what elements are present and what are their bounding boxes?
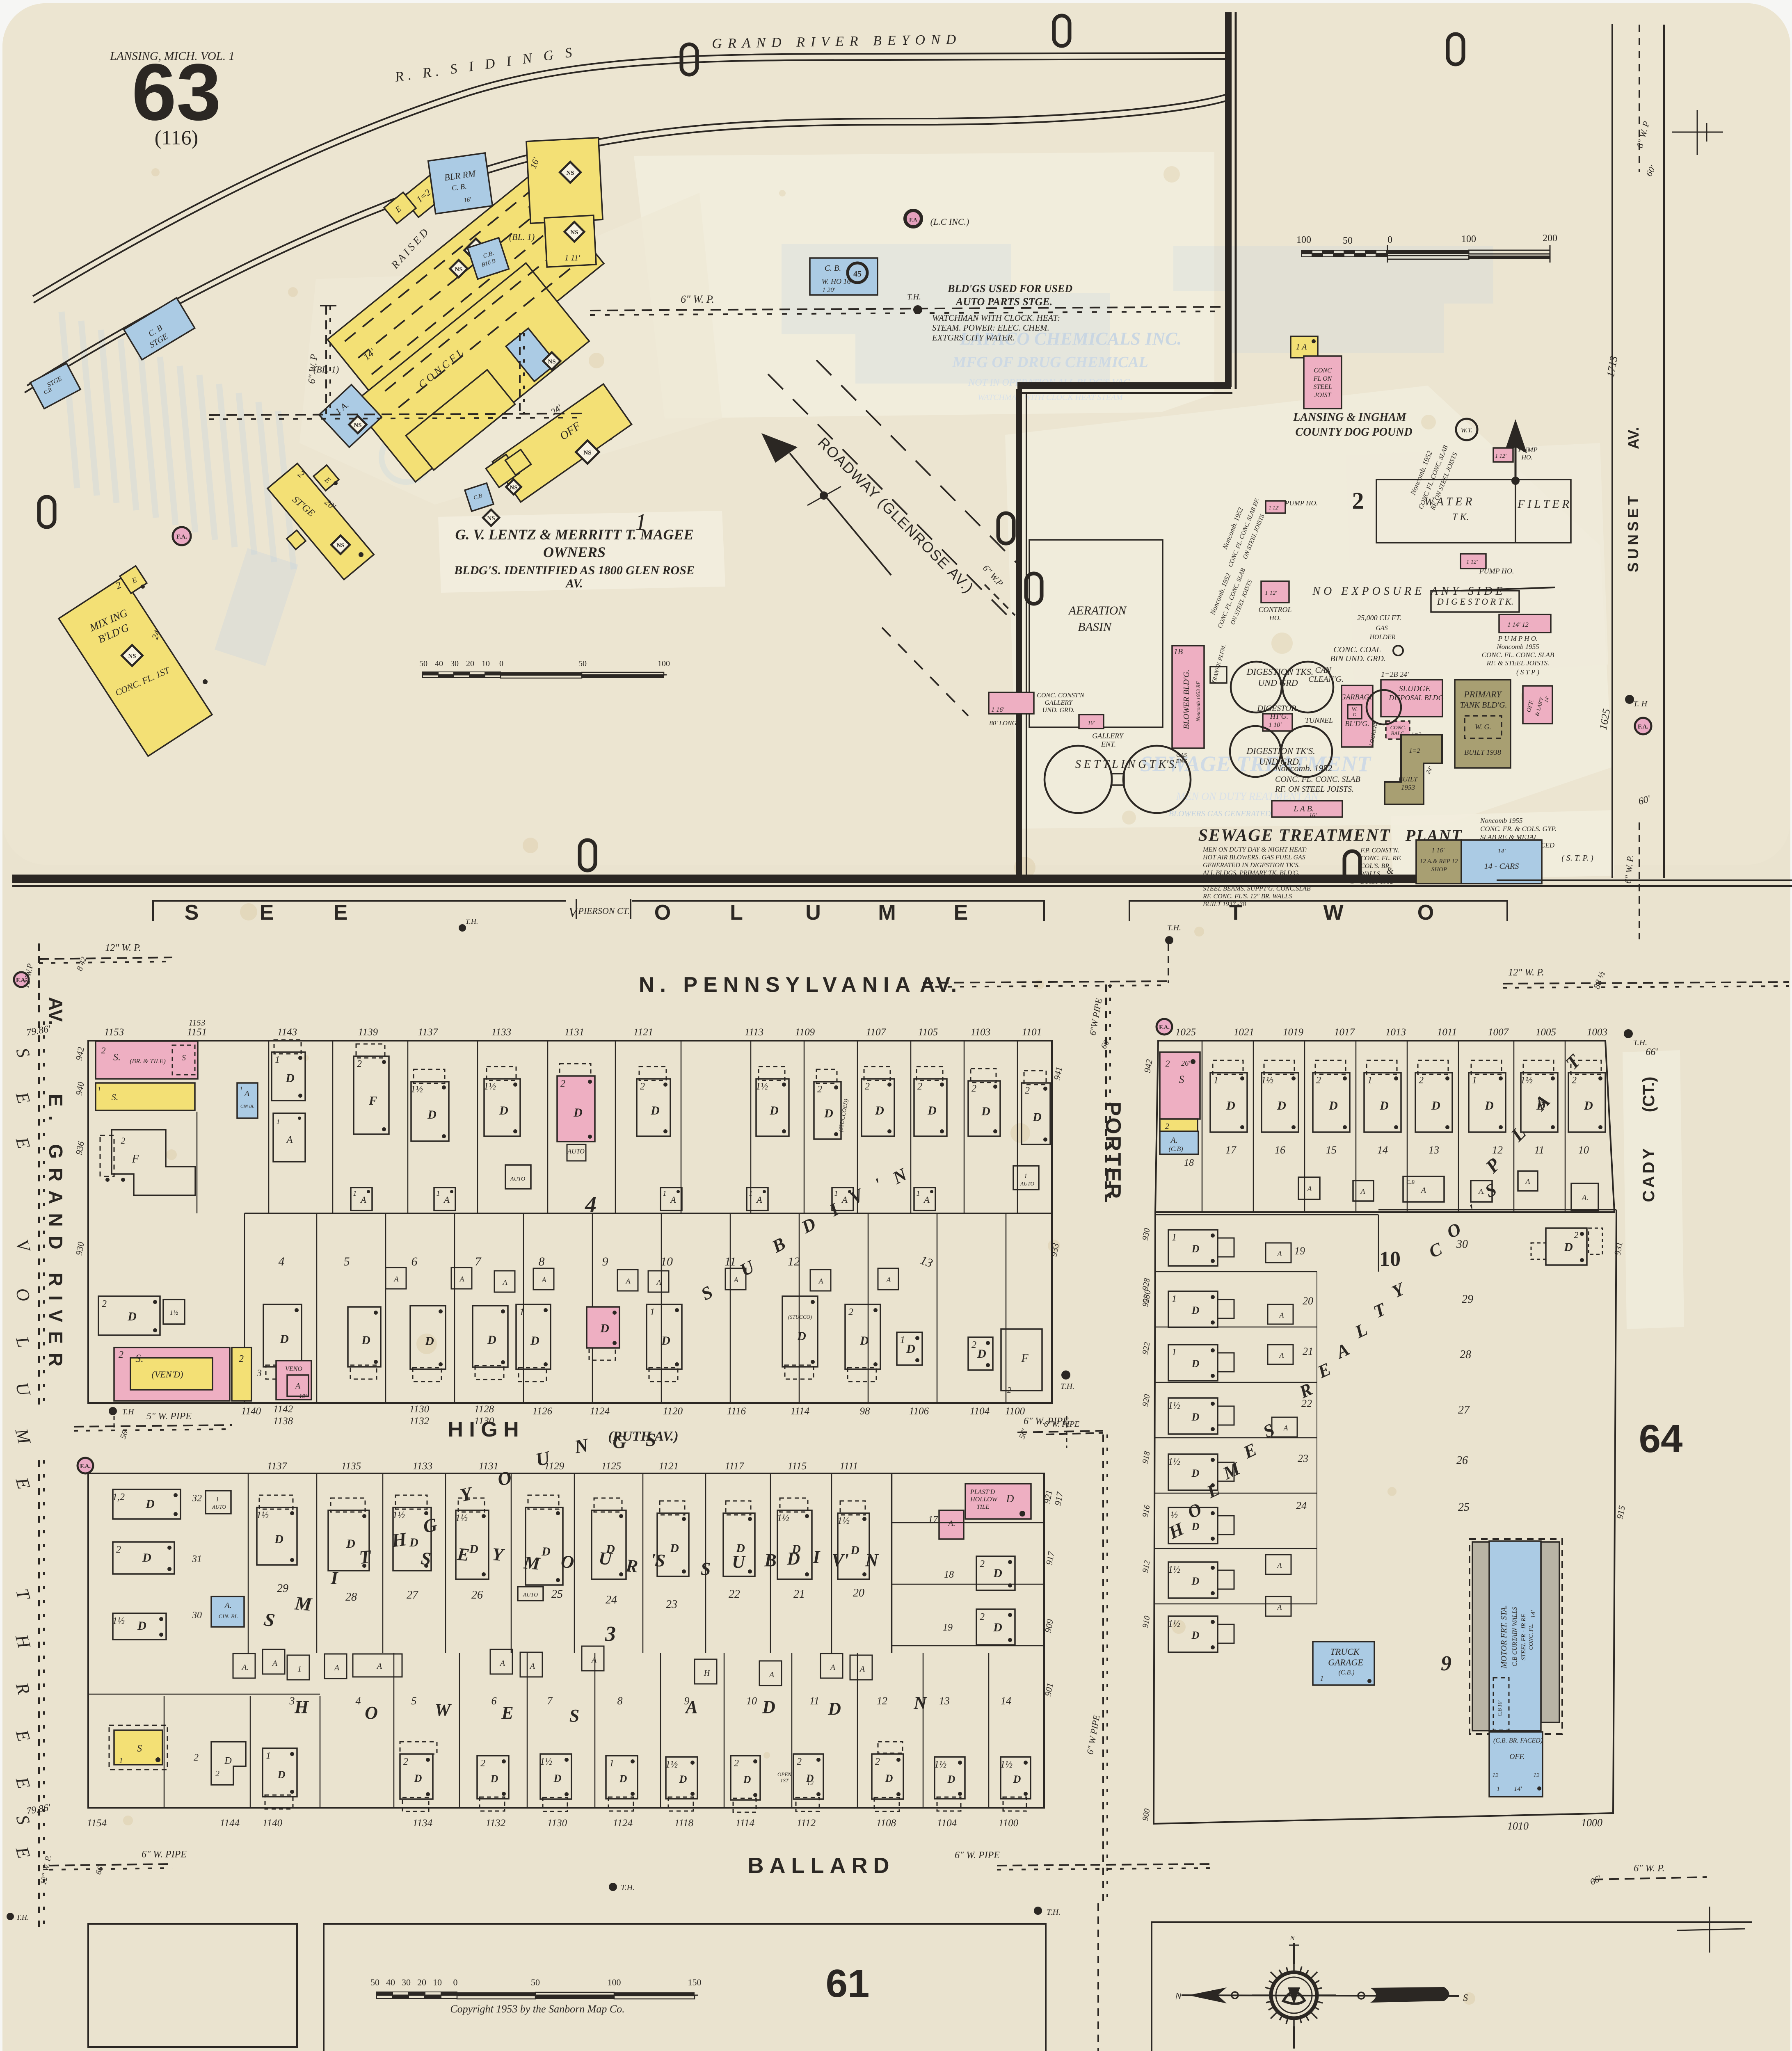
svg-text:1121: 1121	[633, 1027, 653, 1038]
svg-text:CIN BL: CIN BL	[240, 1104, 254, 1109]
svg-text:2: 2	[848, 1307, 853, 1318]
svg-text:2: 2	[215, 1769, 219, 1778]
svg-text:(STUCCO): (STUCCO)	[788, 1314, 812, 1320]
svg-text:D: D	[1191, 1358, 1200, 1370]
svg-text:A: A	[542, 1276, 547, 1284]
svg-text:A: A	[768, 1670, 775, 1679]
svg-text:D: D	[409, 1536, 418, 1549]
svg-text:3: 3	[605, 1622, 616, 1646]
svg-text:CIN. BL: CIN. BL	[219, 1614, 238, 1620]
svg-text:2: 2	[121, 1135, 126, 1146]
svg-text:1144: 1144	[220, 1818, 240, 1829]
svg-text:D: D	[827, 1699, 841, 1719]
svg-text:19: 19	[943, 1622, 953, 1633]
svg-text:(C.B.): (C.B.)	[1338, 1669, 1354, 1676]
svg-text:26': 26'	[1181, 1059, 1191, 1067]
svg-text:A.: A.	[947, 1519, 955, 1528]
svg-text:D: D	[797, 1329, 806, 1343]
svg-text:1,2: 1,2	[112, 1492, 125, 1503]
svg-text:A: A	[360, 1195, 366, 1205]
svg-text:11: 11	[809, 1695, 819, 1707]
svg-text:1103: 1103	[971, 1027, 990, 1038]
svg-text:10: 10	[1379, 1247, 1401, 1271]
svg-text:15: 15	[1326, 1144, 1337, 1156]
svg-text:A: A	[503, 1278, 508, 1286]
svg-text:N: N	[1289, 1934, 1295, 1942]
svg-text:2: 2	[116, 1544, 121, 1555]
svg-text:GARAGE: GARAGE	[1328, 1657, 1363, 1667]
svg-text:3: 3	[289, 1695, 295, 1707]
svg-text:O: O	[1184, 1499, 1205, 1523]
svg-text:D: D	[600, 1322, 609, 1335]
svg-text:D: D	[650, 1104, 660, 1117]
svg-text:OPEN: OPEN	[777, 1771, 792, 1777]
svg-text:916: 916	[1141, 1504, 1152, 1518]
svg-text:D: D	[427, 1108, 437, 1121]
svg-text:OFF.: OFF.	[1509, 1752, 1525, 1761]
svg-text:U: U	[11, 1380, 34, 1399]
svg-text:D: D	[541, 1545, 551, 1558]
svg-text:S: S	[1463, 1993, 1468, 2003]
svg-text:2: 2	[1419, 1075, 1424, 1086]
svg-text:PLAST'D: PLAST'D	[970, 1489, 995, 1496]
svg-text:C.B: C.B	[1406, 1179, 1415, 1185]
svg-text:D: D	[1277, 1099, 1286, 1112]
svg-text:18: 18	[1184, 1158, 1194, 1168]
svg-text:1: 1	[1472, 1075, 1477, 1086]
svg-text:901: 901	[1042, 1682, 1055, 1697]
svg-text:H: H	[11, 1632, 34, 1651]
svg-text:O: O	[365, 1703, 378, 1723]
svg-text:E: E	[12, 1475, 34, 1491]
svg-text:1: 1	[650, 1307, 655, 1318]
svg-text:915: 915	[1614, 1505, 1627, 1520]
svg-text:S: S	[569, 1706, 579, 1726]
svg-text:1112: 1112	[797, 1818, 816, 1829]
svg-text:D: D	[977, 1347, 986, 1361]
svg-text:A: A	[670, 1195, 676, 1205]
svg-text:O: O	[11, 1286, 34, 1304]
svg-text:'S: 'S	[649, 1550, 666, 1571]
svg-text:1101: 1101	[1022, 1027, 1042, 1038]
svg-text:D: D	[661, 1334, 670, 1348]
svg-text:M: M	[294, 1592, 313, 1615]
svg-text:2: 2	[1025, 1085, 1030, 1096]
svg-text:D: D	[553, 1772, 562, 1784]
svg-text:VENO: VENO	[285, 1366, 302, 1373]
svg-text:(C.B. BR. FACED): (C.B. BR. FACED)	[1493, 1737, 1543, 1744]
svg-text:W: W	[434, 1700, 452, 1720]
svg-text:1113: 1113	[745, 1027, 763, 1038]
svg-text:7: 7	[475, 1255, 482, 1268]
svg-text:1140: 1140	[241, 1406, 261, 1417]
svg-text:6" W PIPE: 6" W PIPE	[1085, 1714, 1102, 1755]
svg-text:23: 23	[666, 1598, 677, 1611]
svg-text:A: A	[1279, 1351, 1285, 1359]
svg-text:12: 12	[877, 1695, 887, 1707]
svg-text:13: 13	[939, 1695, 950, 1707]
svg-text:D: D	[859, 1334, 869, 1348]
svg-text:28: 28	[1460, 1348, 1471, 1361]
svg-text:1: 1	[297, 1665, 302, 1674]
svg-text:1133: 1133	[413, 1461, 432, 1472]
svg-text:E: E	[12, 1135, 34, 1151]
svg-text:T.H.: T.H.	[1167, 923, 1181, 932]
svg-text:22: 22	[729, 1588, 740, 1601]
svg-text:17: 17	[928, 1514, 938, 1525]
svg-text:E: E	[456, 1544, 471, 1565]
svg-text:A: A	[499, 1659, 505, 1668]
svg-text:2: 2	[797, 1756, 802, 1767]
svg-text:CADY: CADY	[1640, 1146, 1658, 1202]
svg-text:I: I	[330, 1567, 339, 1588]
svg-text:928: 928	[1141, 1277, 1152, 1291]
svg-text:D: D	[679, 1773, 687, 1785]
svg-text:1: 1	[1172, 1347, 1177, 1358]
svg-text:14': 14'	[1497, 848, 1506, 855]
svg-text:A: A	[684, 1697, 697, 1717]
svg-text:2: 2	[640, 1081, 645, 1092]
svg-text:1½: 1½	[1000, 1759, 1013, 1770]
svg-text:1134: 1134	[413, 1818, 432, 1829]
svg-text:27: 27	[407, 1589, 418, 1601]
svg-text:F.A.: F.A.	[80, 1463, 91, 1470]
svg-text:MOTOR FRT. STA.: MOTOR FRT. STA.	[1499, 1605, 1509, 1669]
svg-text:5: 5	[344, 1255, 350, 1268]
svg-text:A: A	[656, 1278, 662, 1286]
svg-text:1½: 1½	[170, 1309, 178, 1316]
svg-text:31: 31	[192, 1554, 202, 1565]
svg-text:W: W	[1323, 901, 1344, 925]
svg-text:1130: 1130	[547, 1818, 567, 1829]
svg-text:E: E	[12, 1089, 34, 1106]
svg-text:A: A	[443, 1195, 450, 1205]
svg-text:D: D	[786, 1549, 800, 1569]
svg-text:D: D	[1584, 1099, 1593, 1112]
svg-text:56: 56	[119, 1430, 130, 1440]
svg-text:1132: 1132	[409, 1416, 429, 1427]
svg-text:9: 9	[602, 1255, 608, 1268]
svg-text:1142: 1142	[273, 1404, 293, 1415]
svg-text:1003: 1003	[1587, 1027, 1607, 1038]
svg-text:10: 10	[746, 1695, 757, 1707]
svg-text:D: D	[743, 1774, 751, 1786]
svg-text:(C.B): (C.B)	[1168, 1146, 1183, 1153]
svg-text:A: A	[1307, 1185, 1312, 1193]
svg-text:1½: 1½	[455, 1513, 468, 1523]
svg-text:1154: 1154	[87, 1818, 107, 1829]
svg-text:1117: 1117	[725, 1461, 745, 1472]
svg-text:30: 30	[402, 1977, 411, 1987]
svg-text:11: 11	[1534, 1144, 1544, 1156]
svg-text:1½: 1½	[112, 1616, 125, 1626]
svg-text:A: A	[1420, 1186, 1426, 1195]
svg-text:19: 19	[1294, 1245, 1305, 1257]
svg-text:A: A	[1525, 1177, 1531, 1185]
svg-text:D: D	[619, 1773, 627, 1785]
svg-text:A: A	[886, 1276, 891, 1284]
svg-text:1: 1	[1024, 1173, 1027, 1180]
svg-text:A: A	[244, 1089, 250, 1098]
svg-text:T.H.: T.H.	[16, 1913, 29, 1921]
svg-text:2: 2	[1007, 1386, 1011, 1395]
svg-text:D: D	[530, 1334, 539, 1348]
svg-text:2: 2	[980, 1612, 985, 1622]
svg-text:S: S	[701, 1559, 711, 1579]
svg-text:N: N	[913, 1693, 928, 1713]
svg-text:1153: 1153	[104, 1027, 124, 1038]
svg-text:TRUCK: TRUCK	[1330, 1647, 1360, 1657]
svg-text:6" W. PIPE: 6" W. PIPE	[142, 1849, 187, 1860]
svg-text:R: R	[12, 1680, 34, 1697]
svg-text:21: 21	[793, 1588, 805, 1601]
svg-text:1: 1	[519, 1307, 524, 1318]
svg-text:1½: 1½	[777, 1513, 789, 1523]
svg-text:Y: Y	[1389, 1278, 1409, 1302]
svg-text:': '	[871, 1174, 885, 1195]
svg-text:4: 4	[356, 1695, 361, 1707]
svg-text:17: 17	[1225, 1144, 1237, 1156]
svg-text:16: 16	[1275, 1144, 1285, 1156]
svg-text:1: 1	[266, 1751, 271, 1761]
svg-text:21: 21	[1303, 1345, 1313, 1357]
svg-text:A: A	[376, 1662, 382, 1671]
svg-text:D: D	[1191, 1629, 1200, 1641]
svg-text:CONC. FL.: CONC. FL.	[1528, 1624, 1534, 1650]
svg-text:6" W. P.: 6" W. P.	[1634, 1863, 1664, 1874]
svg-text:A: A	[295, 1382, 301, 1391]
svg-text:922: 922	[1141, 1341, 1152, 1355]
svg-text:4: 4	[585, 1192, 597, 1217]
svg-text:1153: 1153	[189, 1018, 205, 1028]
svg-text:79.86': 79.86'	[25, 1023, 52, 1038]
svg-text:2: 2	[102, 1299, 107, 1309]
svg-text:N: N	[1175, 1991, 1182, 2002]
svg-text:2: 2	[403, 1756, 408, 1767]
svg-text:M: M	[523, 1552, 542, 1574]
svg-text:D: D	[1191, 1243, 1200, 1255]
svg-text:1111: 1111	[840, 1461, 858, 1472]
svg-text:1139: 1139	[358, 1027, 378, 1038]
svg-text:N: N	[865, 1550, 879, 1570]
svg-text:U: U	[598, 1548, 613, 1569]
svg-text:2: 2	[239, 1354, 244, 1364]
svg-text:E: E	[334, 901, 348, 925]
svg-text:13: 13	[1429, 1144, 1439, 1156]
svg-text:2: 2	[357, 1059, 362, 1069]
svg-text:1118: 1118	[674, 1818, 694, 1829]
svg-text:50: 50	[531, 1977, 540, 1987]
svg-text:936: 936	[73, 1140, 86, 1156]
svg-text:12: 12	[1492, 1144, 1503, 1156]
svg-text:D: D	[1484, 1099, 1494, 1112]
svg-text:1100: 1100	[1005, 1406, 1025, 1417]
svg-text:A: A	[830, 1663, 836, 1672]
svg-text:D: D	[1006, 1493, 1014, 1505]
svg-text:942: 942	[73, 1046, 86, 1061]
svg-text:2: 2	[865, 1081, 870, 1092]
svg-text:D: D	[361, 1334, 370, 1347]
svg-text:A: A	[818, 1277, 824, 1285]
svg-text:A: A	[626, 1277, 631, 1285]
svg-text:B: B	[768, 1233, 789, 1257]
svg-text:1019: 1019	[1283, 1027, 1304, 1038]
svg-text:12: 12	[1534, 1772, 1540, 1779]
svg-text:921: 921	[1042, 1489, 1054, 1504]
svg-text:10: 10	[1578, 1144, 1589, 1156]
svg-text:1: 1	[749, 1189, 753, 1197]
svg-text:1114: 1114	[736, 1818, 754, 1829]
svg-text:12 A.& REP 12: 12 A.& REP 12	[1420, 858, 1458, 865]
svg-text:A: A	[841, 1195, 848, 1205]
svg-text:1: 1	[437, 1189, 440, 1197]
svg-text:30: 30	[192, 1610, 202, 1621]
svg-text:H I G H: H I G H	[448, 1418, 519, 1441]
svg-text:A: A	[734, 1276, 739, 1284]
svg-text:E: E	[12, 1775, 34, 1791]
svg-text:3: 3	[256, 1368, 262, 1379]
svg-text:Copyright 1953 by the Sanborn: Copyright 1953 by the Sanborn Map Co.	[450, 2003, 624, 2015]
svg-text:D: D	[285, 1071, 295, 1085]
svg-text:(STUCCOED): (STUCCOED)	[838, 1099, 850, 1133]
svg-text:30: 30	[1456, 1238, 1468, 1251]
svg-text:24: 24	[606, 1594, 617, 1606]
svg-text:M: M	[878, 901, 896, 925]
svg-text:7: 7	[547, 1695, 553, 1707]
svg-text:D: D	[1032, 1110, 1042, 1124]
svg-text:1½: 1½	[540, 1756, 552, 1767]
svg-text:2: 2	[1165, 1122, 1169, 1131]
svg-text:D: D	[469, 1542, 478, 1556]
svg-text:F: F	[1021, 1352, 1029, 1365]
svg-text:A: A	[756, 1195, 762, 1205]
svg-text:1: 1	[98, 1085, 101, 1093]
svg-text:A: A	[394, 1275, 399, 1283]
svg-text:H: H	[704, 1669, 711, 1678]
svg-text:40: 40	[386, 1977, 395, 1987]
svg-text:T.H.: T.H.	[1633, 1038, 1647, 1047]
svg-text:N: N	[573, 1434, 591, 1457]
svg-text:1013: 1013	[1385, 1027, 1406, 1038]
svg-text:D: D	[137, 1619, 146, 1633]
svg-text:1½: 1½	[1168, 1457, 1180, 1467]
svg-text:D: D	[573, 1106, 583, 1119]
svg-text:Y: Y	[458, 1482, 475, 1506]
svg-text:2: 2	[119, 1350, 123, 1360]
svg-text:A: A	[272, 1659, 278, 1668]
svg-text:1: 1	[1367, 1075, 1372, 1086]
svg-text:I: I	[826, 1199, 843, 1221]
svg-text:931: 931	[1612, 1241, 1624, 1256]
svg-text:912: 912	[1141, 1560, 1152, 1573]
svg-text:98: 98	[860, 1406, 871, 1417]
svg-text:1109: 1109	[795, 1027, 815, 1038]
svg-text:S.: S.	[113, 1052, 121, 1063]
svg-text:1: 1	[119, 1756, 123, 1765]
svg-text:100: 100	[608, 1977, 621, 1987]
svg-text:2: 2	[1574, 1230, 1579, 1240]
svg-text:D: D	[1013, 1773, 1021, 1785]
svg-text:25: 25	[551, 1588, 563, 1601]
svg-text:D: D	[414, 1772, 422, 1784]
svg-text:926: 926	[1141, 1294, 1152, 1307]
svg-text:1½: 1½	[1261, 1075, 1273, 1086]
svg-text:O: O	[1417, 901, 1434, 925]
svg-text:1: 1	[275, 1055, 280, 1065]
svg-text:D: D	[274, 1533, 283, 1546]
svg-text:A: A	[459, 1275, 465, 1283]
svg-text:1137: 1137	[418, 1027, 439, 1038]
svg-text:L: L	[1506, 1122, 1530, 1146]
svg-text:A: A	[923, 1195, 930, 1205]
svg-text:6: 6	[491, 1695, 497, 1707]
svg-text:1½: 1½	[1520, 1075, 1533, 1086]
svg-text:12" W. P.: 12" W. P.	[105, 943, 141, 953]
svg-text:1106: 1106	[909, 1406, 929, 1417]
svg-text:E: E	[260, 901, 274, 925]
svg-text:1½: 1½	[837, 1516, 850, 1526]
svg-text:A.: A.	[1170, 1136, 1177, 1145]
svg-text:C.B CURTAIN WALLS: C.B CURTAIN WALLS	[1511, 1607, 1518, 1667]
svg-text:Y: Y	[491, 1544, 506, 1565]
svg-text:D: D	[499, 1104, 508, 1117]
svg-text:1½: 1½	[665, 1759, 678, 1770]
svg-text:918: 918	[1141, 1450, 1152, 1464]
svg-text:13: 13	[919, 1253, 935, 1270]
svg-text:56': 56'	[1017, 1427, 1029, 1440]
svg-text:1½: 1½	[1168, 1565, 1180, 1575]
svg-text:20: 20	[1303, 1295, 1313, 1307]
svg-text:909: 909	[1042, 1618, 1055, 1633]
svg-text:23: 23	[1298, 1453, 1308, 1464]
svg-text:S: S	[12, 1046, 34, 1060]
svg-text:1124: 1124	[590, 1406, 610, 1417]
svg-text:1100: 1100	[999, 1818, 1019, 1829]
svg-text:1: 1	[240, 1086, 243, 1092]
svg-text:29: 29	[1462, 1293, 1473, 1306]
svg-text:1151: 1151	[187, 1027, 207, 1038]
svg-text:A.: A.	[241, 1663, 249, 1672]
svg-text:933: 933	[1048, 1242, 1061, 1257]
svg-text:N. PENNSYLVANIA: N. PENNSYLVANIA	[639, 973, 916, 997]
svg-text:AUTO: AUTO	[1020, 1181, 1034, 1187]
svg-text:27: 27	[1458, 1404, 1470, 1416]
svg-text:A.: A.	[1581, 1193, 1589, 1202]
svg-text:11: 11	[725, 1255, 736, 1268]
svg-text:26: 26	[471, 1589, 483, 1601]
svg-text:61: 61	[826, 1962, 870, 2005]
svg-text:A: A	[859, 1665, 865, 1674]
svg-text:64: 64	[1639, 1417, 1683, 1461]
svg-text:O: O	[654, 901, 671, 925]
svg-text:2: 2	[971, 1340, 976, 1350]
svg-text:1007: 1007	[1488, 1027, 1509, 1038]
svg-text:1137: 1137	[267, 1461, 288, 1472]
svg-text:O: O	[560, 1551, 575, 1573]
svg-text:D: D	[145, 1497, 155, 1511]
svg-text:A: A	[529, 1662, 535, 1671]
svg-text:I: I	[812, 1547, 821, 1567]
svg-text:D: D	[425, 1334, 434, 1348]
svg-text:50: 50	[370, 1977, 379, 1987]
svg-text:D: D	[850, 1544, 859, 1557]
svg-text:C: C	[1426, 1238, 1445, 1262]
svg-text:D: D	[993, 1621, 1002, 1634]
svg-text:T.H.: T.H.	[621, 1883, 635, 1892]
svg-text:T: T	[358, 1546, 372, 1568]
svg-text:A: A	[1283, 1424, 1289, 1432]
svg-text:66: 66	[94, 1865, 105, 1876]
